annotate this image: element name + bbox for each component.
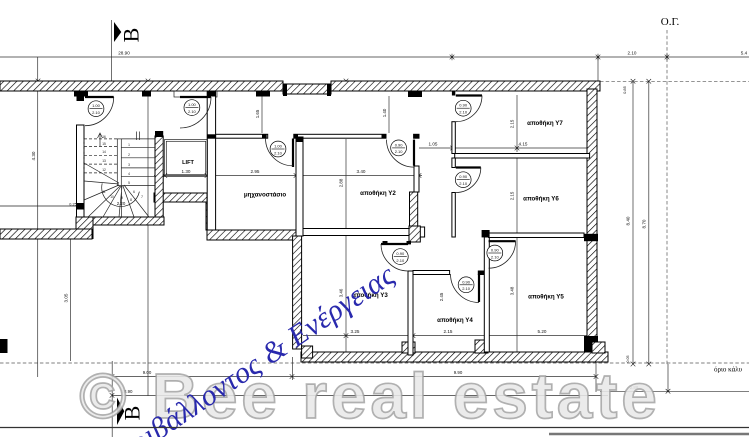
svg-text:8.40: 8.40 — [626, 216, 631, 225]
svg-text:5: 5 — [128, 181, 130, 185]
svg-text:3.48: 3.48 — [510, 286, 515, 295]
svg-text:2.10: 2.10 — [462, 286, 471, 291]
svg-text:16: 16 — [102, 135, 106, 139]
svg-text:0.90: 0.90 — [459, 174, 468, 179]
svg-text:3: 3 — [128, 163, 130, 167]
svg-text:15: 15 — [102, 142, 106, 146]
svg-text:2.88: 2.88 — [339, 178, 344, 187]
svg-text:2.10: 2.10 — [188, 109, 197, 114]
svg-text:όριο κάλυ: όριο κάλυ — [714, 366, 743, 374]
svg-text:4.15: 4.15 — [519, 142, 528, 147]
svg-text:2.10: 2.10 — [395, 149, 404, 154]
svg-text:0.90: 0.90 — [491, 248, 500, 253]
svg-text:12: 12 — [102, 168, 106, 172]
svg-text:2.10: 2.10 — [274, 150, 283, 155]
svg-text:10: 10 — [110, 195, 114, 199]
svg-text:9: 9 — [121, 196, 123, 200]
svg-text:2.10: 2.10 — [92, 110, 101, 115]
svg-text:2.10: 2.10 — [459, 181, 468, 186]
svg-text:3.25: 3.25 — [351, 329, 360, 334]
svg-text:2.10: 2.10 — [396, 258, 405, 263]
svg-text:αποθήκη Υ6: αποθήκη Υ6 — [523, 196, 559, 203]
svg-text:αποθήκη Υ2: αποθήκη Υ2 — [360, 190, 396, 197]
svg-text:4.30: 4.30 — [31, 151, 36, 160]
svg-text:αποθήκη Υ4: αποθήκη Υ4 — [437, 317, 473, 324]
svg-text:2.95: 2.95 — [251, 169, 260, 174]
svg-text:1: 1 — [128, 143, 130, 147]
svg-text:2.15: 2.15 — [510, 119, 515, 128]
svg-text:αποθήκη Υ7: αποθήκη Υ7 — [527, 120, 563, 127]
svg-text:LIFT: LIFT — [182, 160, 194, 166]
svg-text:2.15: 2.15 — [444, 329, 453, 334]
svg-text:Ο.Γ.: Ο.Γ. — [661, 16, 680, 28]
svg-text:5.4: 5.4 — [741, 51, 748, 56]
svg-text:13: 13 — [102, 159, 106, 163]
svg-text:1.05: 1.05 — [429, 142, 438, 147]
svg-text:28.90: 28.90 — [118, 51, 130, 56]
svg-text:2.15: 2.15 — [510, 191, 515, 200]
svg-text:1.30: 1.30 — [182, 169, 191, 174]
svg-text:0.90: 0.90 — [462, 279, 471, 284]
svg-text:2.10: 2.10 — [491, 254, 500, 259]
svg-text:2: 2 — [128, 153, 130, 157]
svg-text:1.65: 1.65 — [255, 109, 260, 118]
svg-text:8: 8 — [130, 198, 132, 202]
svg-text:1.00: 1.00 — [188, 102, 197, 107]
svg-text:μηχανοστάσιο: μηχανοστάσιο — [244, 192, 287, 199]
svg-text:0.90: 0.90 — [396, 251, 405, 256]
svg-text:0.85: 0.85 — [622, 85, 627, 94]
svg-text:1.00: 1.00 — [274, 144, 283, 149]
svg-text:0.90: 0.90 — [459, 103, 468, 108]
svg-text:2.10: 2.10 — [628, 51, 637, 56]
svg-text:1.40: 1.40 — [382, 108, 387, 117]
svg-text:0.25: 0.25 — [69, 203, 76, 207]
svg-text:2.10: 2.10 — [459, 110, 468, 115]
svg-text:7: 7 — [141, 195, 143, 199]
svg-text:2.45: 2.45 — [439, 292, 444, 301]
svg-text:6: 6 — [133, 190, 135, 194]
svg-text:14: 14 — [102, 150, 106, 154]
svg-text:11: 11 — [102, 190, 106, 194]
svg-text:4: 4 — [128, 172, 130, 176]
svg-text:8.70: 8.70 — [642, 219, 647, 228]
svg-text:1.00: 1.00 — [92, 103, 101, 108]
svg-text:B: B — [119, 28, 144, 43]
svg-text:αποθήκη Υ5: αποθήκη Υ5 — [528, 294, 564, 301]
svg-text:2.20: 2.20 — [117, 201, 126, 206]
svg-text:3.05: 3.05 — [64, 293, 69, 302]
svg-text:0.90: 0.90 — [395, 142, 404, 147]
svg-text:3.40: 3.40 — [357, 169, 366, 174]
svg-text:5.20: 5.20 — [538, 329, 547, 334]
